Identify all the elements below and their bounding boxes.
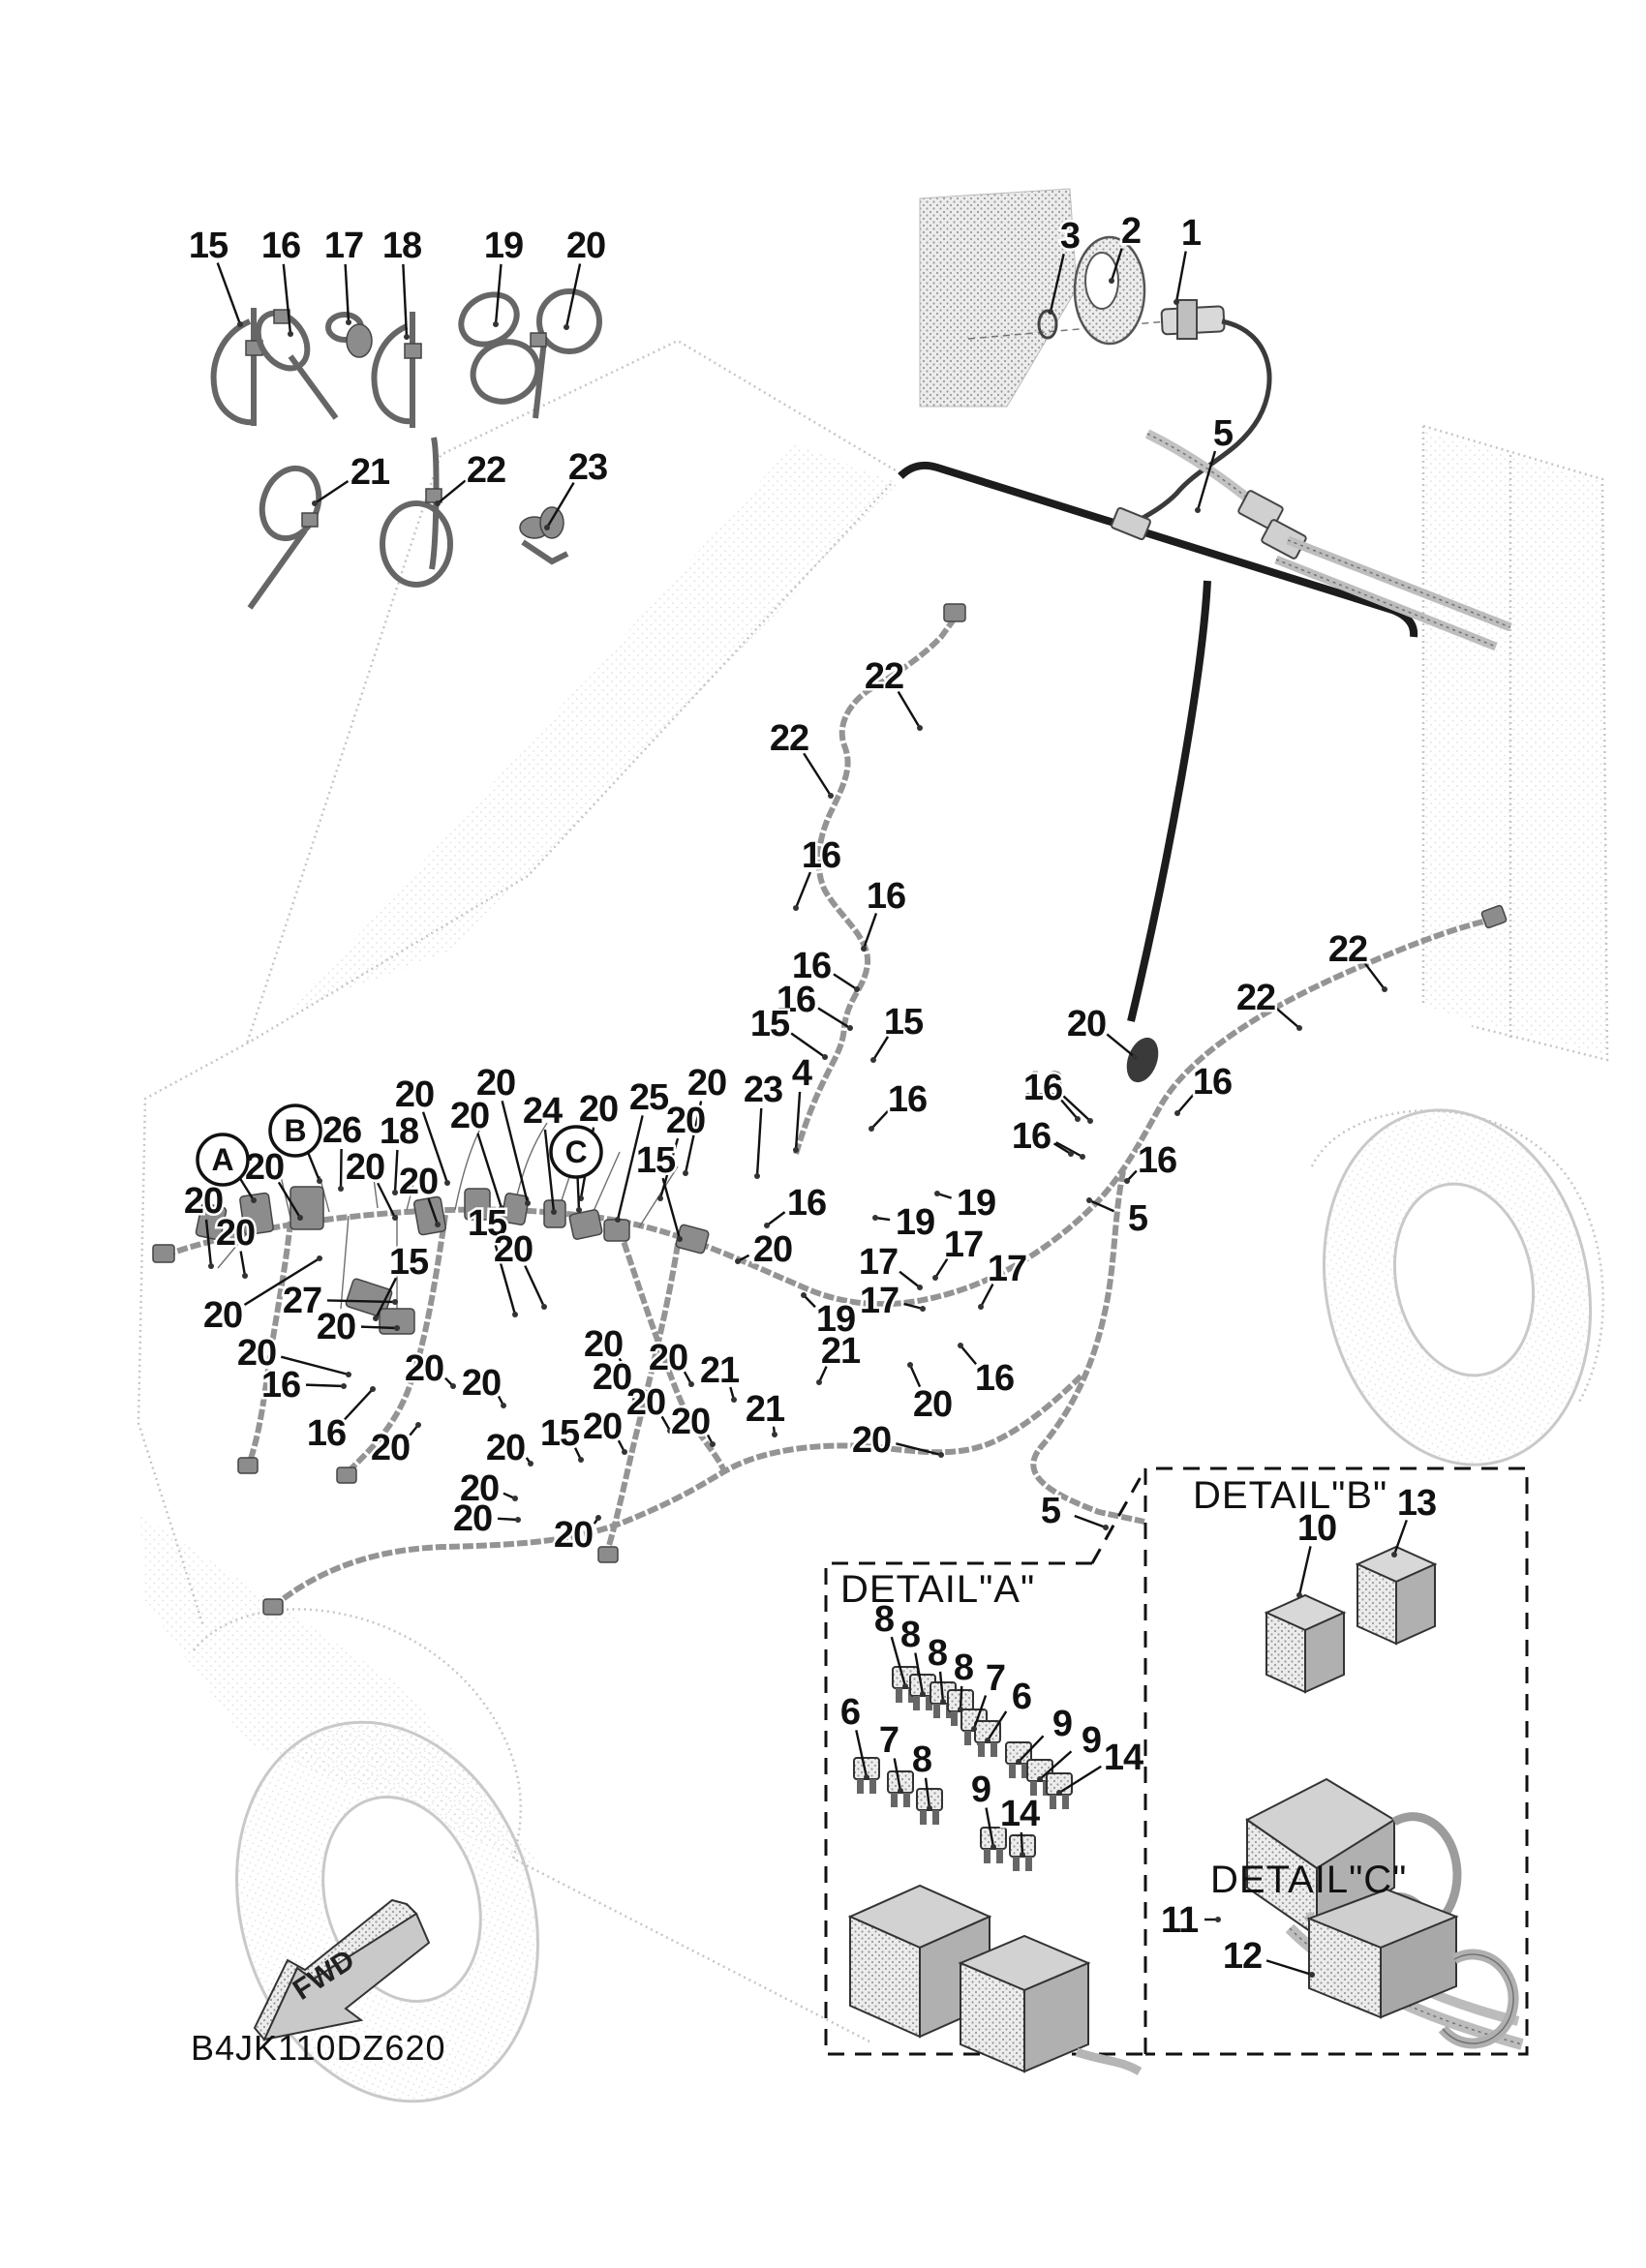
leader-endpoint — [1132, 1054, 1138, 1060]
callout-label-16: 16 — [787, 1183, 826, 1224]
leader-line — [241, 1252, 245, 1276]
leader-endpoint — [1391, 1552, 1397, 1557]
callout-label-8: 8 — [874, 1599, 894, 1640]
wiring-harness-parts-diagram: FWD DETAIL"A" DETAIL"B" DETAIL"C" B4JK11… — [0, 0, 1646, 2268]
leader-endpoint — [917, 1285, 923, 1290]
callout-label-20: 20 — [583, 1406, 622, 1447]
callout-label-15: 15 — [189, 226, 229, 266]
leader-endpoint — [938, 1452, 944, 1458]
leader-endpoint — [985, 1738, 991, 1743]
leader-endpoint — [1086, 1197, 1092, 1203]
leader-endpoint — [864, 1774, 869, 1780]
callout-label-5: 5 — [1213, 413, 1234, 454]
detail-a-title: DETAIL"A" — [840, 1568, 1035, 1611]
callout-label-20: 20 — [579, 1089, 618, 1130]
leader-endpoint — [677, 1236, 683, 1242]
callout-label-20: 20 — [346, 1147, 384, 1188]
leader-line — [804, 753, 831, 796]
leader-endpoint — [1048, 309, 1053, 315]
callout-label-20: 20 — [566, 226, 605, 266]
callout-label-20: 20 — [216, 1213, 255, 1254]
leader-endpoint — [793, 905, 799, 911]
leader-endpoint — [870, 1057, 876, 1063]
part-23-thumb — [520, 507, 567, 561]
leader-endpoint — [297, 1215, 303, 1221]
leader-endpoint — [907, 1362, 913, 1368]
o2-sensor-inset — [920, 189, 1269, 540]
callout-label-6: 6 — [1012, 1677, 1031, 1717]
part-16-thumb — [248, 304, 336, 418]
leader-endpoint — [595, 1515, 601, 1521]
callout-label-3: 3 — [1060, 216, 1080, 257]
leader-line — [767, 1212, 785, 1225]
callout-label-17: 17 — [860, 1281, 899, 1321]
callout-label-20: 20 — [753, 1229, 792, 1270]
leader-endpoint — [415, 1422, 421, 1428]
leader-endpoint — [435, 500, 441, 506]
callout-label-15: 15 — [540, 1413, 580, 1454]
callout-label-20: 20 — [554, 1515, 593, 1556]
callout-label-8: 8 — [954, 1648, 973, 1688]
leader-endpoint — [1109, 278, 1114, 284]
callout-label-14: 14 — [1000, 1794, 1040, 1834]
section-circle-label-A: A — [211, 1142, 233, 1177]
leader-endpoint — [1174, 299, 1179, 305]
leader-endpoint — [1382, 986, 1387, 992]
callout-label-16: 16 — [1138, 1140, 1176, 1181]
callout-label-20: 20 — [405, 1348, 443, 1389]
leader-endpoint — [251, 1197, 257, 1203]
callout-label-22: 22 — [770, 718, 808, 759]
leader-endpoint — [493, 321, 499, 327]
leader-line — [1266, 1960, 1312, 1975]
detail-c-parts — [1309, 1890, 1513, 2043]
leader-endpoint — [341, 1383, 347, 1389]
leader-endpoint — [373, 1315, 379, 1321]
leader-line — [834, 974, 857, 989]
callout-label-21: 21 — [351, 452, 390, 493]
leader-endpoint — [1037, 1776, 1043, 1782]
callout-label-20: 20 — [666, 1101, 705, 1141]
leader-endpoint — [861, 946, 867, 952]
leader-endpoint — [1195, 507, 1201, 513]
leader-endpoint — [932, 1275, 938, 1281]
callout-label-20: 20 — [453, 1498, 492, 1539]
part-19-thumb — [452, 285, 547, 411]
callout-label-8: 8 — [928, 1633, 947, 1674]
leader-endpoint — [1087, 1118, 1093, 1124]
leader-endpoint — [444, 1180, 450, 1186]
drawing-code: B4JK110DZ620 — [191, 2028, 446, 2068]
leader-endpoint — [764, 1223, 770, 1228]
callout-label-16: 16 — [975, 1358, 1014, 1399]
relay-10 — [1266, 1595, 1344, 1692]
leader-endpoint — [683, 1170, 688, 1176]
callout-label-7: 7 — [879, 1720, 899, 1761]
callout-label-20: 20 — [317, 1307, 355, 1347]
callout-label-8: 8 — [912, 1739, 931, 1780]
leader-endpoint — [1124, 1178, 1130, 1184]
leader-endpoint — [934, 1191, 940, 1196]
leader-endpoint — [657, 1195, 663, 1201]
main-harness — [153, 604, 1507, 1615]
leader-endpoint — [1215, 1917, 1221, 1922]
leader-endpoint — [541, 1304, 547, 1310]
callout-label-20: 20 — [371, 1428, 410, 1468]
fuse-box-2 — [960, 1936, 1140, 2071]
leader-endpoint — [1174, 1110, 1180, 1116]
detail-c-title: DETAIL"C" — [1210, 1859, 1407, 1901]
leader-endpoint — [404, 334, 410, 340]
leader-endpoint — [544, 525, 550, 530]
leader-endpoint — [898, 1788, 903, 1794]
leader-endpoint — [710, 1441, 716, 1447]
callout-label-19: 19 — [484, 226, 523, 266]
callout-label-22: 22 — [1236, 978, 1275, 1018]
leader-endpoint — [288, 331, 293, 337]
leader-endpoint — [735, 1258, 741, 1264]
callout-label-20: 20 — [494, 1229, 533, 1270]
callout-label-20: 20 — [913, 1384, 952, 1425]
leader-endpoint — [1020, 1852, 1025, 1858]
leader-endpoint — [822, 1054, 828, 1060]
leader-endpoint — [816, 1379, 822, 1385]
callout-label-20: 20 — [450, 1096, 489, 1136]
leader-endpoint — [564, 324, 569, 330]
leader-endpoint — [622, 1449, 627, 1455]
leader-endpoint — [869, 1126, 874, 1132]
callout-label-20: 20 — [671, 1402, 710, 1442]
callout-label-18: 18 — [380, 1111, 418, 1152]
callout-label-19: 19 — [957, 1183, 995, 1224]
callout-label-20: 20 — [626, 1382, 665, 1423]
leader-endpoint — [576, 1207, 582, 1213]
leader-endpoint — [772, 1432, 777, 1437]
leader-line — [796, 872, 810, 908]
leader-endpoint — [754, 1173, 760, 1179]
leader-line — [1299, 1546, 1311, 1595]
callout-label-16: 16 — [1193, 1062, 1232, 1103]
leader-endpoint — [346, 1372, 351, 1377]
callout-label-20: 20 — [486, 1428, 525, 1468]
callout-label-15: 15 — [636, 1140, 676, 1181]
callout-label-20: 20 — [462, 1363, 501, 1404]
callout-label-20: 20 — [1067, 1004, 1106, 1044]
leader-line — [960, 1346, 976, 1364]
callout-label-16: 16 — [1012, 1116, 1051, 1157]
callout-label-22: 22 — [1328, 929, 1367, 970]
leader-endpoint — [551, 1209, 557, 1215]
callout-label-11: 11 — [1161, 1900, 1199, 1941]
leader-line — [1107, 1034, 1135, 1057]
leader-endpoint — [370, 1386, 376, 1392]
leader-endpoint — [501, 1403, 506, 1408]
callout-label-22: 22 — [467, 450, 505, 491]
callout-label-9: 9 — [1052, 1704, 1072, 1744]
callout-label-16: 16 — [888, 1079, 927, 1120]
leader-line — [1021, 1832, 1022, 1855]
leader-endpoint — [237, 321, 243, 327]
callout-label-25: 25 — [629, 1077, 669, 1118]
callout-label-19: 19 — [816, 1299, 855, 1340]
callout-label-7: 7 — [986, 1658, 1005, 1699]
callout-label-9: 9 — [971, 1769, 991, 1810]
leader-line — [796, 1092, 800, 1150]
leader-endpoint — [512, 1312, 518, 1317]
leader-endpoint — [392, 1299, 398, 1305]
leader-endpoint — [958, 1343, 963, 1348]
callout-label-16: 16 — [261, 1365, 300, 1406]
leader-endpoint — [1080, 1154, 1085, 1160]
leader-endpoint — [346, 319, 351, 325]
leader-endpoint — [902, 1683, 908, 1689]
callout-label-17: 17 — [988, 1249, 1026, 1289]
callout-label-4: 4 — [792, 1053, 812, 1094]
leader-line — [1276, 1009, 1299, 1028]
leader-endpoint — [1056, 1790, 1062, 1796]
leader-endpoint — [920, 1306, 926, 1312]
coil-part — [1121, 1033, 1165, 1086]
callout-label-17: 17 — [324, 226, 363, 266]
leader-endpoint — [958, 1707, 963, 1712]
leader-line — [864, 913, 876, 949]
callout-label-16: 16 — [867, 876, 905, 917]
callout-label-20: 20 — [399, 1162, 438, 1202]
leader-line — [899, 691, 920, 728]
leader-line — [1075, 1516, 1106, 1527]
leader-endpoint — [731, 1397, 737, 1403]
callout-label-8: 8 — [900, 1615, 920, 1655]
callout-label-6: 6 — [840, 1692, 860, 1733]
callout-label-13: 13 — [1397, 1483, 1436, 1524]
leader-endpoint — [991, 1844, 996, 1850]
leader-endpoint — [927, 1805, 932, 1811]
callout-label-12: 12 — [1223, 1936, 1262, 1977]
callout-label-1: 1 — [1181, 213, 1202, 254]
leader-endpoint — [1068, 1151, 1074, 1157]
leader-endpoint — [394, 1325, 400, 1331]
leader-endpoint — [450, 1383, 456, 1389]
leader-line — [345, 1389, 373, 1419]
leader-line — [306, 1385, 344, 1386]
leader-endpoint — [920, 1691, 926, 1697]
callout-label-22: 22 — [865, 656, 903, 697]
callout-label-20: 20 — [245, 1147, 284, 1188]
callout-label-9: 9 — [1082, 1720, 1101, 1761]
section-circle-label-B: B — [284, 1113, 306, 1148]
callout-label-15: 15 — [750, 1004, 790, 1044]
callout-label-21: 21 — [746, 1389, 785, 1430]
callout-label-23: 23 — [744, 1070, 782, 1110]
leader-endpoint — [1103, 1525, 1109, 1530]
leader-line — [525, 1266, 544, 1307]
leader-line — [395, 1150, 397, 1193]
leader-endpoint — [578, 1457, 584, 1463]
callout-label-17: 17 — [944, 1225, 983, 1265]
leader-endpoint — [1296, 1592, 1302, 1598]
callout-label-24: 24 — [523, 1091, 563, 1132]
leader-endpoint — [392, 1215, 398, 1221]
callout-label-5: 5 — [1128, 1198, 1148, 1239]
leader-endpoint — [688, 1381, 694, 1387]
leader-line — [218, 263, 240, 324]
callout-label-5: 5 — [1041, 1491, 1061, 1531]
callout-label-21: 21 — [700, 1350, 740, 1391]
leader-endpoint — [940, 1699, 946, 1705]
leader-endpoint — [1016, 1759, 1021, 1765]
leader-line — [1364, 963, 1385, 989]
part-20-thumb — [531, 291, 599, 418]
callout-label-26: 26 — [322, 1110, 361, 1151]
callout-label-18: 18 — [382, 226, 421, 266]
leader-line — [327, 1300, 395, 1302]
callout-label-15: 15 — [389, 1242, 429, 1283]
leader-endpoint — [854, 986, 860, 992]
callout-label-19: 19 — [896, 1202, 934, 1243]
leader-endpoint — [242, 1273, 248, 1279]
leader-endpoint — [847, 1025, 853, 1031]
callout-label-20: 20 — [395, 1074, 434, 1115]
callout-label-2: 2 — [1121, 211, 1141, 252]
leader-line — [757, 1108, 761, 1176]
leader-endpoint — [312, 500, 318, 506]
harness-connectors — [153, 604, 1507, 1615]
leader-endpoint — [338, 1186, 344, 1192]
callout-label-16: 16 — [802, 835, 840, 876]
leader-endpoint — [528, 1461, 533, 1467]
callout-label-14: 14 — [1104, 1738, 1143, 1778]
part-18-thumb — [374, 312, 421, 428]
callout-label-23: 23 — [568, 447, 607, 488]
detail-b-title: DETAIL"B" — [1193, 1474, 1387, 1517]
leader-endpoint — [208, 1263, 214, 1269]
leader-line — [1176, 252, 1186, 302]
leader-endpoint — [1309, 1972, 1315, 1978]
section-circle-label-C: C — [564, 1134, 587, 1169]
leader-endpoint — [435, 1222, 441, 1227]
mini-fuses — [854, 1667, 1072, 1871]
leader-endpoint — [1075, 1116, 1081, 1122]
part-22-thumb — [382, 438, 450, 585]
leader-endpoint — [793, 1147, 799, 1153]
leader-endpoint — [392, 1190, 398, 1195]
leader-endpoint — [917, 725, 923, 731]
leader-line — [341, 1149, 342, 1189]
leader-endpoint — [317, 1255, 322, 1261]
relay-13 — [1357, 1547, 1435, 1644]
leader-endpoint — [978, 1304, 984, 1310]
leader-line — [899, 1272, 920, 1287]
leader-line — [498, 1519, 518, 1520]
leader-endpoint — [801, 1292, 807, 1298]
leader-endpoint — [1296, 1025, 1302, 1031]
callout-label-20: 20 — [203, 1295, 242, 1336]
callout-label-16: 16 — [1023, 1068, 1062, 1108]
callout-label-15: 15 — [884, 1002, 924, 1043]
callout-label-17: 17 — [859, 1242, 898, 1283]
callout-label-20: 20 — [687, 1063, 726, 1104]
leader-endpoint — [872, 1215, 878, 1221]
callout-label-20: 20 — [852, 1420, 891, 1461]
leader-line — [871, 1111, 888, 1129]
leader-endpoint — [615, 1217, 621, 1223]
leader-line — [361, 1327, 397, 1328]
callout-label-10: 10 — [1297, 1508, 1336, 1549]
leader-endpoint — [828, 793, 834, 799]
leader-endpoint — [515, 1517, 521, 1523]
callout-label-16: 16 — [307, 1413, 346, 1454]
callout-label-16: 16 — [261, 226, 300, 266]
part-21-thumb — [250, 461, 328, 608]
leader-endpoint — [512, 1496, 518, 1501]
leader-endpoint — [971, 1726, 977, 1732]
callout-label-20: 20 — [649, 1338, 687, 1378]
leader-endpoint — [317, 1178, 322, 1184]
parts-diagram-page: FWD DETAIL"A" DETAIL"B" DETAIL"C" B4JK11… — [0, 0, 1646, 2268]
leader-endpoint — [525, 1200, 531, 1206]
leader-line — [1177, 1095, 1194, 1113]
leader-line — [960, 1686, 961, 1709]
